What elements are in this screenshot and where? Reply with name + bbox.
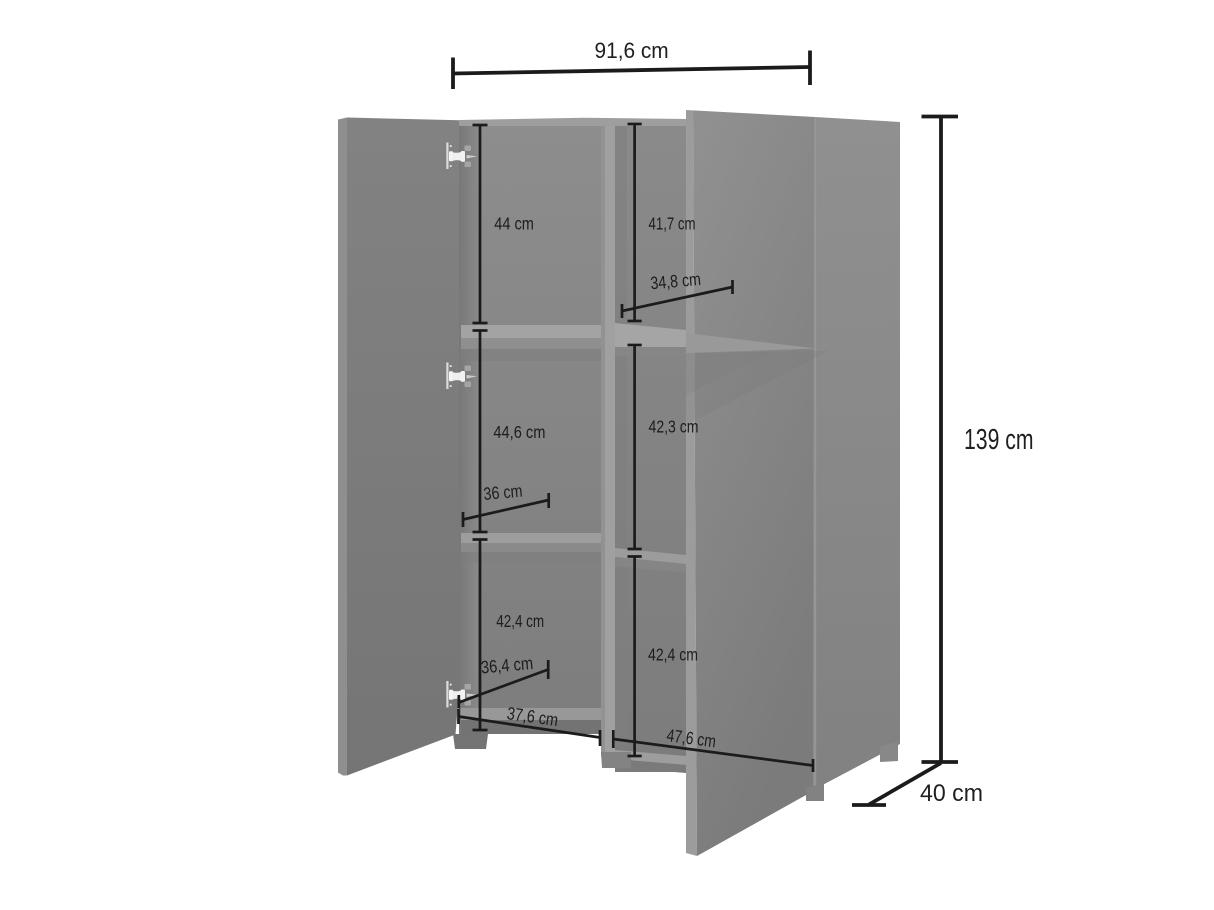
svg-text:139 cm: 139 cm: [964, 424, 1033, 456]
svg-text:44 cm: 44 cm: [494, 214, 534, 234]
svg-text:91,6 cm: 91,6 cm: [595, 37, 669, 63]
svg-text:42,4 cm: 42,4 cm: [496, 612, 544, 631]
svg-text:42,3 cm: 42,3 cm: [649, 417, 699, 437]
svg-text:41,7 cm: 41,7 cm: [649, 215, 696, 234]
svg-text:42,4 cm: 42,4 cm: [648, 645, 698, 665]
svg-text:44,6 cm: 44,6 cm: [493, 423, 545, 443]
svg-text:36 cm: 36 cm: [483, 481, 524, 504]
svg-text:40 cm: 40 cm: [920, 779, 983, 807]
